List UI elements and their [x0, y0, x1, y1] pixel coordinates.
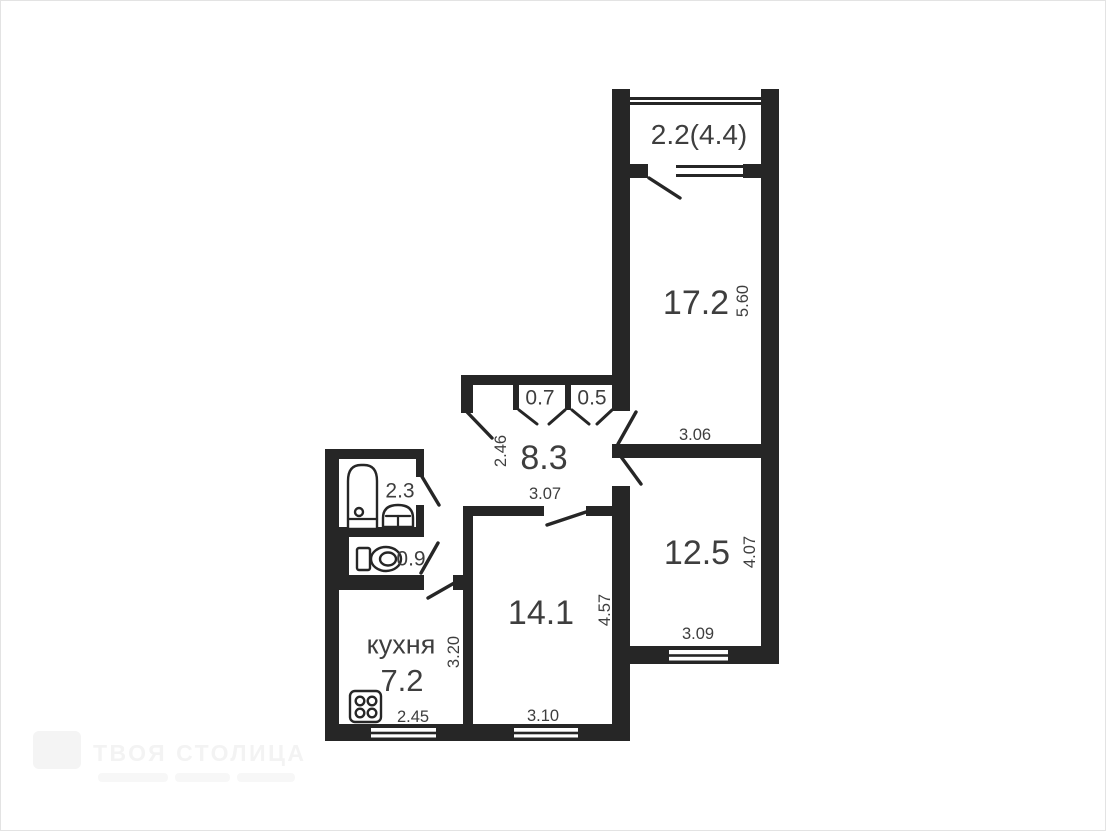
- floor-plan-svg: 2.2(4.4) 17.2 5.60 3.06 0.7 0.5 8.3 2.46…: [1, 1, 1106, 831]
- door-kitchen: [428, 582, 456, 598]
- closet-a-area-label: 0.7: [525, 386, 554, 409]
- living-width-label: 3.06: [679, 426, 711, 444]
- window-room2: [514, 732, 578, 735]
- labels: 2.2(4.4) 17.2 5.60 3.06 0.7 0.5 8.3 2.46…: [367, 119, 759, 726]
- floor-plan-canvas: 2.2(4.4) 17.2 5.60 3.06 0.7 0.5 8.3 2.46…: [0, 0, 1106, 831]
- watermark: ТВОЯ СТОЛИЦА: [33, 731, 307, 782]
- kitchen-depth-label: 3.20: [445, 636, 463, 668]
- wall-segment: [612, 385, 630, 411]
- door-room2: [547, 512, 586, 525]
- door-bathroom: [421, 475, 439, 505]
- wall-segment: [325, 449, 424, 459]
- closet-divider: [565, 385, 571, 410]
- wall-segment: [463, 506, 473, 724]
- bedroom-width-label: 3.09: [682, 625, 714, 643]
- bathroom-area-label: 2.3: [385, 479, 414, 502]
- window-kitchen: [371, 732, 436, 735]
- balcony-railing-line: [630, 97, 761, 100]
- wall-segment: [761, 89, 779, 664]
- kitchen-area-label: 7.2: [380, 663, 423, 698]
- sink-icon: [383, 505, 413, 527]
- bathtub-icon: [348, 465, 377, 529]
- window-living-balcony: [676, 174, 743, 177]
- wall-segment: [325, 575, 424, 590]
- living-area-label: 17.2: [663, 284, 729, 322]
- wall-segment: [461, 375, 630, 385]
- balcony-area-label: 2.2(4.4): [651, 119, 748, 150]
- wall-segment: [586, 506, 630, 516]
- wall-segment: [325, 724, 628, 741]
- wall-segment: [612, 486, 630, 741]
- wall-segment: [461, 375, 473, 413]
- toilet-icon: [357, 547, 401, 571]
- balcony-railing-line: [630, 102, 761, 105]
- wall-segment: [743, 164, 761, 178]
- kitchen-name-label: кухня: [367, 629, 436, 659]
- room2-width-label: 3.10: [527, 707, 559, 725]
- watermark-tagline-bar: [237, 773, 295, 782]
- room2-area-label: 14.1: [508, 594, 574, 632]
- closet-divider: [513, 385, 519, 410]
- door-bedroom: [619, 454, 641, 484]
- door-balcony: [649, 178, 680, 198]
- wall-segment: [612, 164, 648, 178]
- door-entrance: [467, 412, 492, 438]
- wall-segment: [612, 89, 630, 375]
- wall-segment: [339, 537, 349, 575]
- wc-area-label: 0.9: [396, 547, 425, 570]
- living-depth-label: 5.60: [734, 285, 752, 317]
- hallway-width-label: 3.07: [529, 485, 561, 503]
- wall-segment: [463, 506, 544, 516]
- door-closet-a-leaf: [549, 410, 565, 424]
- door-living: [618, 412, 636, 444]
- door-closet-b-leaf: [597, 410, 612, 424]
- closet-b-area-label: 0.5: [577, 386, 606, 409]
- bedroom-area-label: 12.5: [664, 534, 730, 572]
- wall-segment: [325, 449, 339, 741]
- room2-depth-label: 4.57: [596, 594, 614, 626]
- door-closet-a-leaf: [519, 410, 537, 424]
- door-closet-b-leaf: [572, 410, 589, 424]
- stove-icon: [350, 691, 381, 722]
- watermark-brand: ТВОЯ СТОЛИЦА: [93, 740, 307, 766]
- bedroom-depth-label: 4.07: [741, 536, 759, 568]
- hallway-depth-label: 2.46: [492, 435, 510, 467]
- window-bedroom: [669, 654, 728, 657]
- kitchen-width-label: 2.45: [397, 708, 429, 726]
- watermark-logo-icon: [33, 731, 81, 769]
- watermark-tagline-bar: [98, 773, 168, 782]
- watermark-tagline-bar: [175, 773, 230, 782]
- hallway-area-label: 8.3: [520, 439, 567, 477]
- window-living-balcony: [676, 165, 743, 168]
- wall-segment: [612, 444, 761, 458]
